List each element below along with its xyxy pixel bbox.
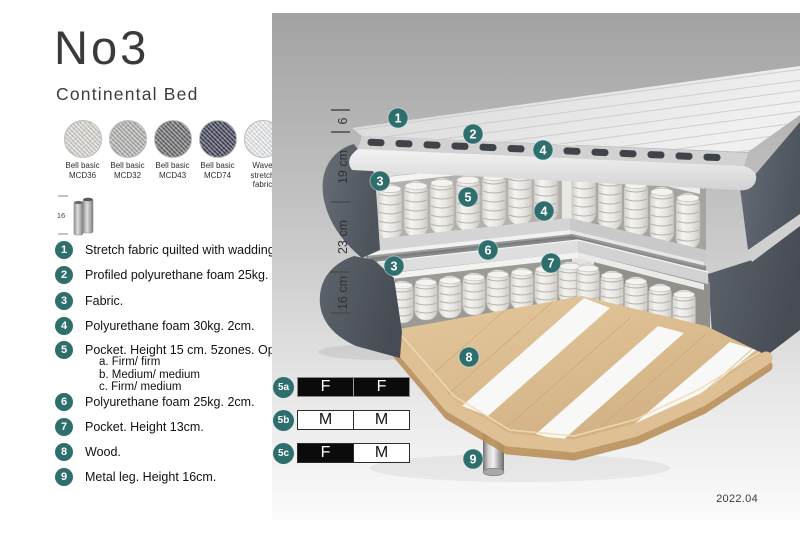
firmness-bar-5c: F M [297, 443, 410, 463]
legend-number-badge: 7 [55, 418, 73, 436]
legend-item-1: 1Stretch fabric quilted with wadding. [55, 241, 278, 259]
fabric-swatch-icon [64, 120, 102, 158]
firmness-cell: M [353, 444, 409, 462]
firmness-cell: M [298, 411, 353, 429]
legend-number-badge: 1 [55, 241, 73, 259]
callout-4-upper: 4 [533, 140, 553, 160]
callout-9: 9 [463, 449, 483, 469]
legend-item-6: 6Polyurethane foam 25kg. 2cm. [55, 393, 255, 411]
callout-2: 2 [463, 124, 483, 144]
svg-text:1: 1 [395, 112, 402, 126]
swatch-mcd74: Bell basicMCD74 [198, 120, 237, 190]
fabric-swatches: Bell basicMCD36 Bell basicMCD32 Bell bas… [63, 120, 282, 190]
legend-number-badge: 6 [55, 393, 73, 411]
dimension-label-leg: 16 cm [336, 276, 350, 310]
fabric-swatch-icon [154, 120, 192, 158]
swatch-mcd32: Bell basicMCD32 [108, 120, 147, 190]
swatch-label: Bell basicMCD36 [63, 161, 102, 180]
callout-7: 7 [541, 253, 561, 273]
callout-3-lower: 3 [384, 256, 404, 276]
swatch-mcd36: Bell basicMCD36 [63, 120, 102, 190]
legend-number-badge: 4 [55, 317, 73, 335]
svg-text:5: 5 [465, 191, 472, 205]
fabric-swatch-icon [109, 120, 147, 158]
dimension-label-mattress: 19 cm [336, 150, 350, 184]
callout-4-lower: 4 [534, 201, 554, 221]
firmness-cell: F [298, 378, 353, 396]
callout-8: 8 [459, 347, 479, 367]
fabric-swatch-icon [199, 120, 237, 158]
svg-text:8: 8 [466, 351, 473, 365]
svg-text:2: 2 [470, 128, 477, 142]
legend-item-4: 4Polyurethane foam 30kg. 2cm. [55, 317, 255, 335]
swatch-label: Bell basicMCD43 [153, 161, 192, 180]
firmness-cell: F [353, 378, 409, 396]
page-subtitle: Continental Bed [56, 84, 199, 105]
legend-item-9: 9Metal leg. Height 16cm. [55, 468, 216, 486]
legend-number-badge: 3 [55, 292, 73, 310]
legend-number-badge: 2 [55, 266, 73, 284]
swatch-label: Bell basicMCD32 [108, 161, 147, 180]
callout-5: 5 [458, 187, 478, 207]
legend-item-2: 2Profiled polyurethane foam 25kg. 4cm. [55, 266, 299, 284]
legend-item-5-options: a. Firm/ firm b. Medium/ medium c. Firm/… [99, 356, 200, 394]
firmness-badge-5b: 5b [273, 410, 294, 431]
firmness-cell: M [353, 411, 409, 429]
legend-number-badge: 9 [55, 468, 73, 486]
swatch-mcd43: Bell basicMCD43 [153, 120, 192, 190]
dimension-label-topper: 6 [336, 117, 350, 124]
firmness-cell: F [298, 444, 353, 462]
firmness-badge-5c: 5c [273, 443, 294, 464]
svg-text:9: 9 [470, 453, 477, 467]
svg-text:4: 4 [541, 205, 548, 219]
callout-6: 6 [478, 240, 498, 260]
svg-text:6: 6 [485, 244, 492, 258]
legend-item-8: 8Wood. [55, 443, 121, 461]
callout-3-upper: 3 [370, 171, 390, 191]
firmness-badge-5a: 5a [273, 377, 294, 398]
legend-number-badge: 5 [55, 341, 73, 359]
svg-text:3: 3 [391, 260, 398, 274]
callout-1: 1 [388, 108, 408, 128]
version-label: 2022.04 [678, 493, 758, 505]
swatch-label: Bell basicMCD74 [198, 161, 237, 180]
svg-text:3: 3 [377, 175, 384, 189]
legend-number-badge: 8 [55, 443, 73, 461]
page-title: No3 [54, 20, 149, 75]
svg-text:16: 16 [57, 211, 65, 220]
legend-item-7: 7Pocket. Height 13cm. [55, 418, 204, 436]
metal-leg-icon: 16 [50, 190, 120, 240]
legend-item-3: 3Fabric. [55, 292, 123, 310]
svg-text:4: 4 [540, 144, 547, 158]
svg-text:7: 7 [548, 257, 555, 271]
dimension-label-base: 23 cm [336, 220, 350, 254]
firmness-bar-5a: F F [297, 377, 410, 397]
firmness-bar-5b: M M [297, 410, 410, 430]
